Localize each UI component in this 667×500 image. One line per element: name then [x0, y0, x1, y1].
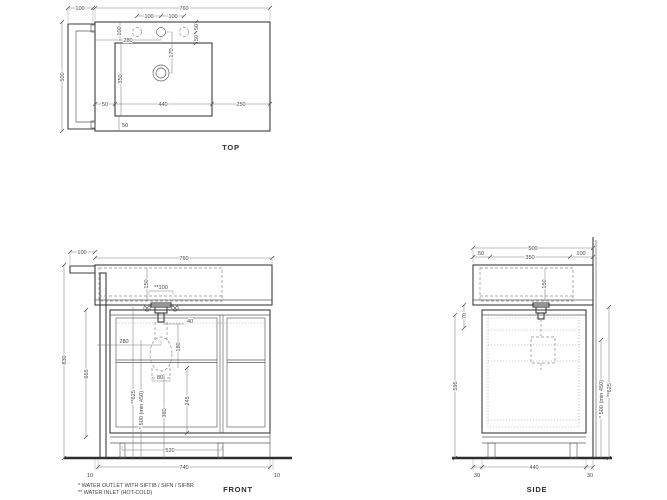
front-plinth — [110, 433, 270, 458]
svg-text:280: 280 — [119, 339, 128, 345]
svg-text:760: 760 — [179, 256, 188, 262]
side-plinth — [482, 437, 586, 458]
svg-text:70: 70 — [462, 313, 468, 319]
front-dim-plinth-520: 520 — [122, 446, 222, 454]
svg-text:740: 740 — [179, 465, 188, 471]
svg-text:180: 180 — [176, 342, 182, 351]
side-view-label: SIDE — [527, 485, 548, 494]
svg-text:280: 280 — [123, 38, 132, 44]
svg-text:100: 100 — [168, 14, 177, 20]
svg-text:760: 760 — [179, 6, 188, 12]
front-dim-360: 360 — [162, 374, 168, 458]
front-siphon-hidden — [150, 322, 172, 378]
svg-text:150: 150 — [144, 279, 150, 288]
front-dim-280: 280 — [97, 339, 161, 345]
top-dim-depth: 500 — [60, 20, 66, 133]
front-view-label: FRONT — [223, 485, 253, 494]
top-towel-rail — [68, 24, 95, 129]
view-front: 100 760 150 **100 830 665 — [62, 250, 292, 494]
view-top: 100 760 100 100 500 100 — [60, 6, 272, 152]
svg-text:100: 100 — [77, 250, 86, 256]
front-faucet-icon — [151, 303, 171, 322]
top-dim-hole-offset: 100 — [117, 22, 123, 41]
svg-text:665: 665 — [84, 369, 90, 378]
side-dim-inlet-height: **625 — [607, 305, 613, 460]
svg-text:100: 100 — [576, 251, 585, 257]
svg-text:245: 245 — [185, 396, 191, 405]
top-dim-basin-depth: 350 — [118, 43, 124, 116]
svg-text:595: 595 — [453, 381, 459, 390]
top-dim-drain: 170 — [166, 32, 175, 73]
front-dim-width: 760 — [93, 256, 274, 265]
top-optional-hole-right — [180, 28, 189, 37]
svg-text:830: 830 — [62, 355, 68, 364]
top-view-label: TOP — [222, 143, 240, 152]
svg-text:**100: **100 — [154, 285, 168, 291]
footnote-water-outlet: * WATER OUTLET WITH SIFTIB / SIFN / SIFB… — [78, 483, 194, 489]
side-drain-icon — [533, 303, 549, 336]
svg-text:50: 50 — [194, 24, 200, 30]
front-dim-cabinet-height: 665 — [84, 308, 90, 439]
side-basin-hidden — [480, 268, 573, 301]
svg-text:50: 50 — [478, 251, 484, 257]
side-siphon-hidden — [531, 337, 555, 370]
side-cabinet — [482, 310, 586, 433]
front-counter-outline — [95, 265, 272, 305]
svg-text:100: 100 — [144, 14, 153, 20]
technical-drawing-page: 100 760 100 100 500 100 — [0, 0, 667, 500]
svg-text:80: 80 — [157, 375, 163, 381]
footnote-water-inlet: ** WATER INLET (HOT-COLD) — [78, 490, 152, 496]
svg-text:**625: **625 — [607, 383, 613, 397]
front-dim-total-height: 830 — [62, 263, 68, 460]
front-dim-245: 245 — [185, 366, 191, 435]
svg-text:50: 50 — [122, 123, 128, 129]
top-dim-bottom-chain: 50 440 250 — [93, 102, 272, 108]
svg-text:10: 10 — [274, 473, 280, 479]
top-optional-hole-left — [133, 28, 142, 37]
svg-text:**625: **625 — [131, 390, 137, 404]
side-counter-outline — [473, 265, 593, 305]
svg-text:* 500 (min 450): * 500 (min 450) — [599, 380, 605, 418]
svg-text:150: 150 — [542, 279, 548, 288]
top-dim-rail: 100 — [66, 6, 95, 22]
svg-text:50: 50 — [102, 102, 108, 108]
front-dim-outlet-height: * 500 (min 450) — [139, 340, 145, 458]
svg-text:100: 100 — [117, 26, 123, 35]
side-dim-outlet-height: * 500 (min 450) — [599, 338, 605, 458]
svg-text:500: 500 — [528, 246, 537, 252]
svg-text:50: 50 — [194, 35, 200, 41]
svg-text:100: 100 — [75, 6, 84, 12]
svg-text:360: 360 — [162, 408, 168, 417]
side-dim-595: 595 — [453, 313, 459, 460]
front-dim-inlet-height: **625 — [131, 307, 137, 458]
footnotes: * WATER OUTLET WITH SIFTIB / SIFN / SIFB… — [78, 483, 194, 496]
technical-drawing-canvas: 100 760 100 100 500 100 — [0, 0, 667, 500]
svg-text:10: 10 — [87, 473, 93, 479]
front-dim-rail: 100 — [68, 250, 97, 266]
svg-text:440: 440 — [529, 465, 538, 471]
top-drain-icon — [153, 65, 169, 81]
front-counter-overhang — [70, 266, 95, 273]
svg-text:* 500 (min 450): * 500 (min 450) — [139, 391, 145, 429]
front-dim-base-740: 740 10 10 — [87, 459, 280, 479]
svg-text:40: 40 — [187, 319, 193, 325]
svg-text:250: 250 — [236, 102, 245, 108]
view-side: 500 50 350 100 150 70 595 — [452, 237, 613, 494]
front-cabinet — [110, 310, 270, 433]
svg-text:170: 170 — [169, 48, 175, 57]
front-dim-180: 180 — [176, 324, 182, 368]
side-dim-base-chain: 30 440 30 — [471, 459, 595, 479]
svg-text:440: 440 — [158, 102, 167, 108]
side-dim-70: 70 — [462, 303, 468, 330]
top-dim-hole-spacing: 100 100 — [135, 14, 186, 20]
svg-text:500: 500 — [60, 72, 66, 81]
front-dim-inlet-spacing: **100 — [149, 285, 173, 295]
top-tap-hole — [157, 28, 166, 37]
svg-text:350: 350 — [525, 255, 534, 261]
top-dim-front-margin: 50 — [119, 116, 128, 131]
front-side-shelf-panel — [227, 318, 265, 427]
side-dim-depth-chain: 50 350 100 — [471, 251, 595, 261]
svg-text:350: 350 — [118, 74, 124, 83]
top-dim-50-50: 50 50 — [194, 20, 200, 45]
svg-text:520: 520 — [165, 448, 174, 454]
svg-text:30: 30 — [474, 473, 480, 479]
svg-text:30: 30 — [587, 473, 593, 479]
